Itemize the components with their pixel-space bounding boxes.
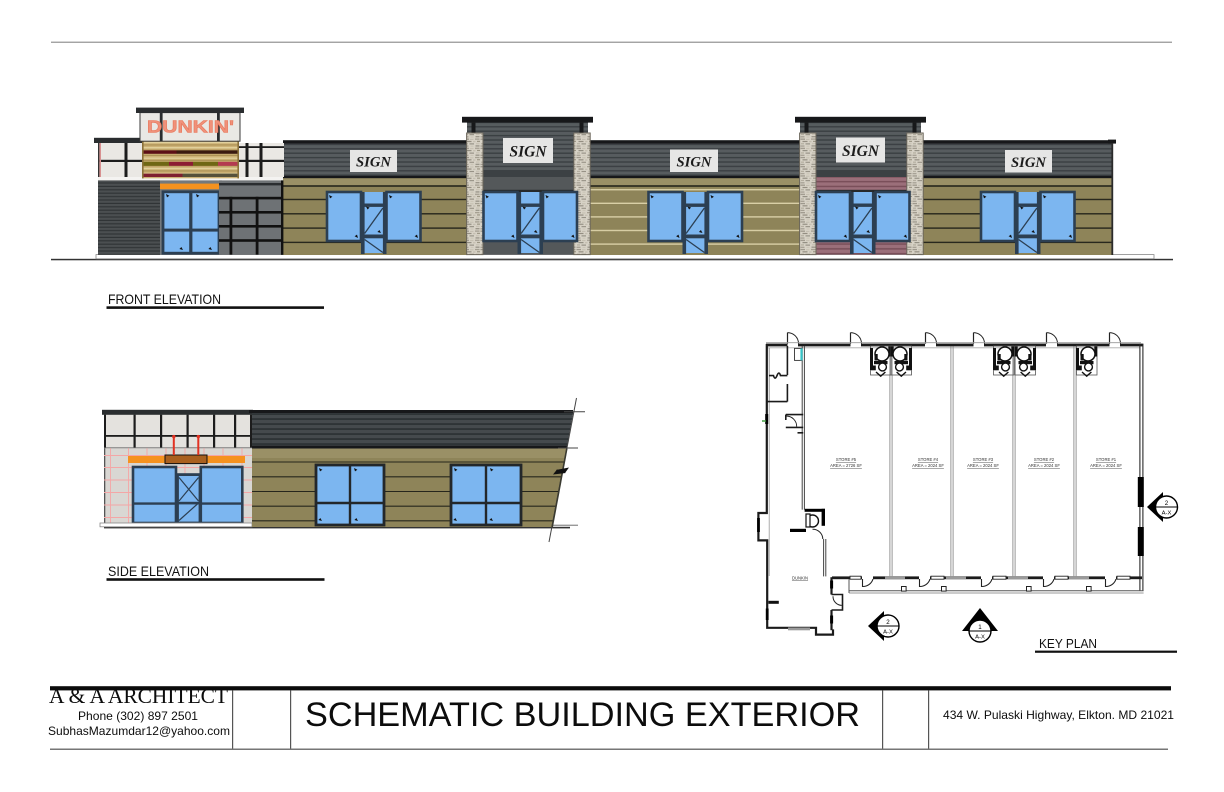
svg-text:SIDE ELEVATION: SIDE ELEVATION [108, 563, 209, 579]
svg-text:A-X: A-X [1162, 511, 1172, 517]
svg-text:STORE #4: STORE #4 [918, 457, 939, 462]
svg-text:1: 1 [978, 624, 982, 631]
svg-text:STORE #3: STORE #3 [973, 457, 994, 462]
svg-text:AREA = 2024 SF: AREA = 2024 SF [1028, 463, 1060, 468]
svg-text:A-X: A-X [883, 630, 893, 636]
svg-text:SIGN: SIGN [1011, 155, 1047, 171]
svg-text:A-X: A-X [975, 635, 985, 641]
svg-text:2: 2 [1165, 500, 1169, 507]
svg-text:A & A ARCHITECT: A & A ARCHITECT [49, 684, 228, 708]
svg-text:DUNKIN: DUNKIN [792, 576, 808, 581]
svg-text:2: 2 [886, 619, 890, 626]
svg-text:KEY PLAN: KEY PLAN [1039, 636, 1097, 651]
svg-text:STORE #1: STORE #1 [1096, 457, 1117, 462]
svg-text:STORE #5: STORE #5 [836, 457, 857, 462]
svg-text:AREA = 2024 SF: AREA = 2024 SF [967, 463, 999, 468]
svg-text:FRONT ELEVATION: FRONT ELEVATION [108, 291, 221, 307]
svg-text:SIGN: SIGN [677, 155, 713, 171]
svg-text:SubhasMazumdar12@yahoo.com: SubhasMazumdar12@yahoo.com [48, 724, 230, 738]
svg-text:SIGN: SIGN [842, 143, 880, 160]
svg-text:SIGN: SIGN [356, 155, 392, 171]
svg-text:AREA = 2024 SF: AREA = 2024 SF [1090, 463, 1122, 468]
svg-text:434 W. Pulaski Highway, Elkton: 434 W. Pulaski Highway, Elkton. MD 21021 [943, 708, 1174, 722]
svg-text:SCHEMATIC BUILDING EXTERIOR: SCHEMATIC BUILDING EXTERIOR [305, 696, 860, 734]
svg-text:DUNKIN': DUNKIN' [147, 117, 234, 137]
svg-text:Phone (302) 897 2501: Phone (302) 897 2501 [78, 709, 198, 723]
svg-text:AREA = 2024 SF: AREA = 2024 SF [912, 463, 944, 468]
svg-text:SIGN: SIGN [510, 144, 548, 161]
svg-text:STORE #2: STORE #2 [1034, 457, 1055, 462]
svg-text:AREA = 2726 SF: AREA = 2726 SF [830, 463, 862, 468]
